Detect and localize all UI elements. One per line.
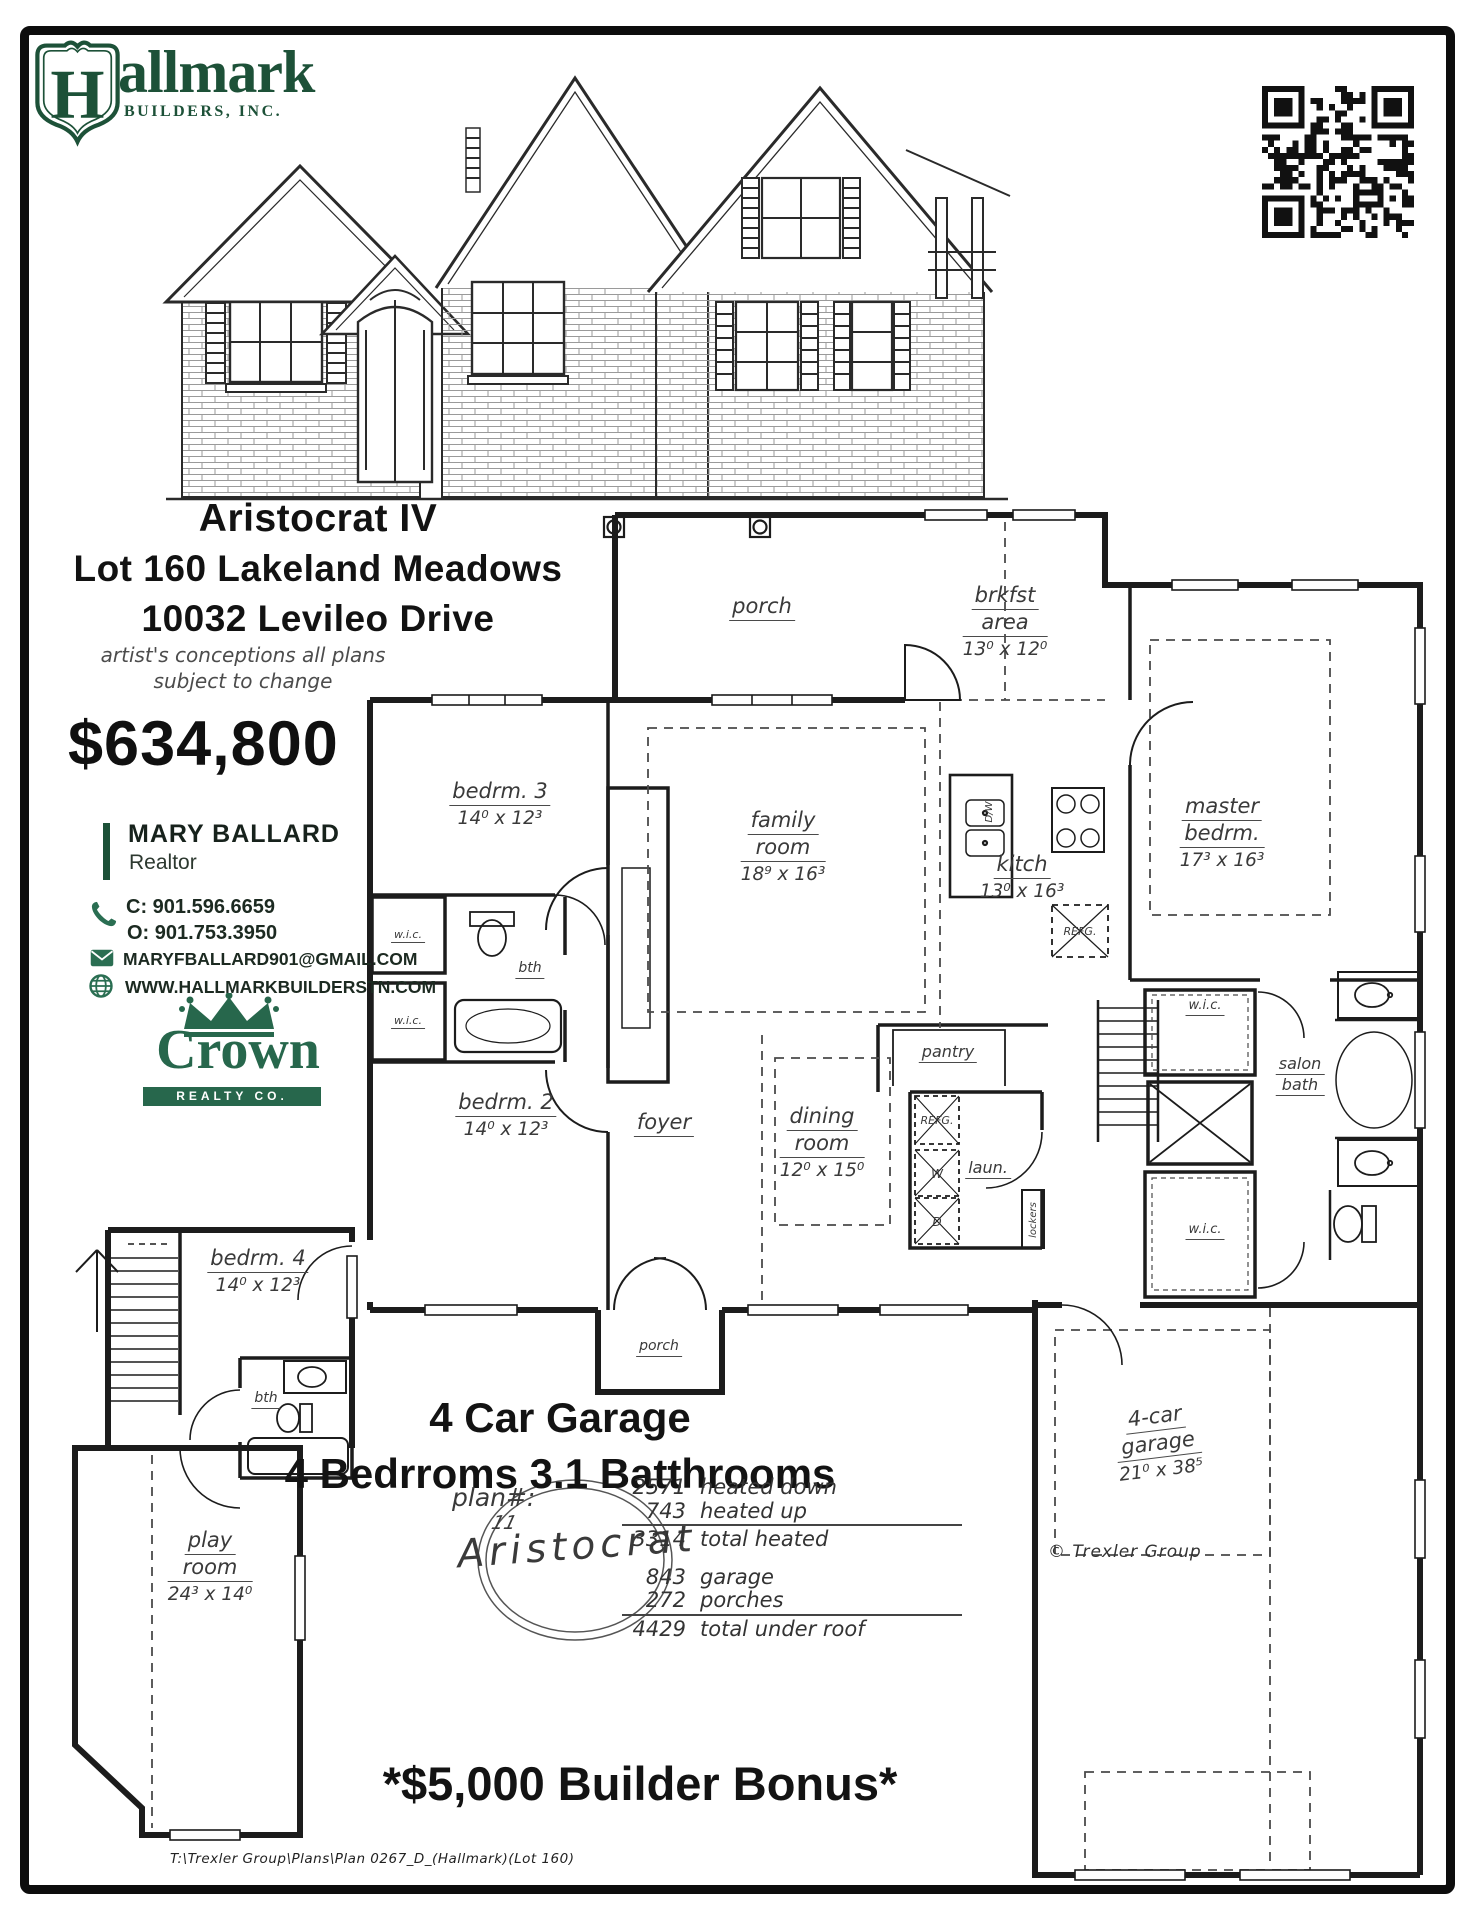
room-porch-front: porch: [636, 1338, 682, 1357]
room-brkfst-l1: brkfst: [972, 583, 1039, 610]
master-bath-fixtures: [1334, 972, 1420, 1242]
room-play-l1: play: [185, 1528, 235, 1555]
room-bth-hall: bth: [515, 960, 544, 979]
area-value: 3314: [622, 1528, 686, 1552]
room-family-dims: 18⁹ x 16³: [741, 862, 826, 886]
agent-name: MARY BALLARD: [128, 820, 340, 849]
plan-title: Aristocrat IV: [28, 494, 608, 544]
room-kitch: kitch 13⁰ x 16³: [980, 852, 1065, 903]
hallmark-wordmark: allmark: [118, 38, 314, 107]
room-bedrm4-l1: bedrm. 4: [207, 1246, 308, 1273]
stair-arrow: [76, 1250, 118, 1332]
area-value: 843: [622, 1566, 686, 1590]
room-bedrm2: bedrm. 2 14⁰ x 12³: [455, 1090, 556, 1141]
area-value: 743: [622, 1500, 686, 1524]
flyer-page: H allmark BUILDERS, INC.: [0, 0, 1473, 1920]
room-wic-master-2: w.i.c.: [1186, 1222, 1225, 1240]
room-laun: laun.: [965, 1158, 1011, 1179]
hallmark-shield-icon: H: [30, 36, 125, 148]
room-play-l2: room: [168, 1555, 253, 1582]
room-play: play room 24³ x 14⁰: [168, 1528, 253, 1607]
room-bedrm4: bedrm. 4 14⁰ x 12³: [207, 1246, 308, 1297]
agent-title: Realtor: [129, 851, 197, 875]
room-brkfst-dims: 13⁰ x 12⁰: [963, 637, 1048, 661]
features-line1: 4 Car Garage: [190, 1390, 930, 1446]
room-brkfst-l2: area: [963, 610, 1048, 637]
windows: [170, 510, 1425, 1880]
lot-line: Lot 160 Lakeland Meadows: [28, 544, 608, 594]
hall-bath-fixtures: [455, 912, 561, 1052]
room-bedrm2-dims: 14⁰ x 12³: [455, 1117, 556, 1141]
room-family-l2: room: [741, 835, 826, 862]
room-master-l2: bedrm.: [1180, 821, 1265, 848]
area-row: 272porches: [622, 1589, 962, 1613]
dryer-label: D: [932, 1215, 941, 1229]
room-bedrm3-dims: 14⁰ x 12³: [449, 806, 550, 830]
price: $634,800: [68, 708, 339, 780]
room-kitch-l1: kitch: [993, 852, 1050, 879]
copyright: © Trexler Group: [1048, 1542, 1202, 1562]
area-label: garage: [700, 1566, 774, 1590]
room-bedrm3: bedrm. 3 14⁰ x 12³: [449, 779, 550, 830]
room-dining-l2: room: [780, 1131, 865, 1158]
hallmark-subtitle: BUILDERS, INC.: [124, 103, 282, 121]
agent-email: MARYFBALLARD901@GMAIL.COM: [123, 949, 417, 970]
room-bedrm2-l1: bedrm. 2: [455, 1090, 556, 1117]
room-pantry: pantry: [919, 1042, 977, 1063]
area-divider: [622, 1524, 962, 1526]
area-row: 843garage: [622, 1566, 962, 1590]
room-master: master bedrm. 17³ x 16³: [1180, 794, 1265, 873]
area-label: heated up: [700, 1500, 807, 1524]
room-play-dims: 24³ x 14⁰: [168, 1582, 253, 1606]
disclaimer-line1: artist's conceptions all plans: [28, 642, 458, 668]
room-master-dims: 17³ x 16³: [1180, 848, 1265, 872]
room-salon-l1: salon: [1276, 1054, 1325, 1075]
area-row: 743heated up: [622, 1500, 962, 1524]
phone-icon: [90, 900, 118, 928]
disclaimer-line2: subject to change: [28, 668, 458, 694]
area-label: porches: [700, 1589, 784, 1613]
area-label: total under roof: [700, 1618, 865, 1642]
room-family-l1: family: [748, 808, 819, 835]
area-value: 272: [622, 1589, 686, 1613]
room-wic-hall-2: w.i.c.: [391, 1014, 425, 1029]
area-divider: [622, 1614, 962, 1616]
builder-bonus: *$5,000 Builder Bonus*: [200, 1756, 1080, 1811]
area-value: 2571: [622, 1476, 686, 1500]
room-dining-l1: dining: [787, 1104, 858, 1131]
refg-label-2: REFG.: [921, 1114, 954, 1127]
house-elevation: [166, 78, 1010, 499]
porch-posts: [604, 517, 770, 537]
crown-wordmark: Crown: [138, 1018, 338, 1082]
room-kitch-dims: 13⁰ x 16³: [980, 879, 1065, 903]
room-bedrm3-l1: bedrm. 3: [449, 779, 550, 806]
area-row: 3314total heated: [622, 1528, 962, 1552]
qr-code: [1262, 86, 1414, 238]
room-wic-master-1: w.i.c.: [1186, 998, 1225, 1016]
area-table: 2571heated down 743heated up 3314total h…: [622, 1476, 962, 1641]
agent-office: O: 901.753.3950: [127, 922, 277, 945]
area-label: total heated: [700, 1528, 828, 1552]
door-arcs: [180, 645, 1304, 1508]
area-value: 4429: [622, 1618, 686, 1642]
washer-label: W: [931, 1167, 944, 1181]
plan-number-label: plan#:: [452, 1483, 535, 1512]
agent-accent-bar: [103, 823, 110, 880]
area-row: 2571heated down: [622, 1476, 962, 1500]
lockers-label: lockers: [1028, 1202, 1039, 1238]
room-master-l1: master: [1182, 794, 1262, 821]
file-path-footer: T:\Trexler Group\Plans\Plan 0267_D_(Hall…: [170, 1851, 574, 1867]
room-salon-bath: salon bath: [1276, 1054, 1325, 1096]
room-family: family room 18⁹ x 16³: [741, 808, 826, 887]
hallmark-h: H: [50, 56, 104, 133]
room-porch-top: porch: [729, 594, 795, 621]
area-label: heated down: [700, 1476, 837, 1500]
crown-subtitle: REALTY CO.: [143, 1087, 321, 1106]
room-bedrm4-dims: 14⁰ x 12³: [207, 1273, 308, 1297]
room-garage: 4-car garage 21⁰ x 38⁵: [1111, 1399, 1205, 1487]
globe-icon: [89, 974, 113, 998]
room-dining-dims: 12⁰ x 15⁰: [780, 1158, 865, 1182]
room-wic-hall-1: w.i.c.: [391, 928, 425, 943]
agent-cell: C: 901.596.6659: [126, 896, 275, 919]
room-brkfst: brkfst area 13⁰ x 12⁰: [963, 583, 1048, 662]
email-icon: [90, 948, 114, 968]
hallmark-logo: H: [30, 36, 125, 153]
address-line: 10032 Levileo Drive: [28, 594, 608, 644]
area-row: 4429total under roof: [622, 1618, 962, 1642]
room-salon-l2: bath: [1276, 1075, 1325, 1096]
dishwasher-label: D/W: [984, 800, 995, 822]
room-foyer: foyer: [634, 1110, 694, 1137]
room-dining: dining room 12⁰ x 15⁰: [780, 1104, 865, 1183]
refg-label: REFG.: [1064, 925, 1097, 938]
